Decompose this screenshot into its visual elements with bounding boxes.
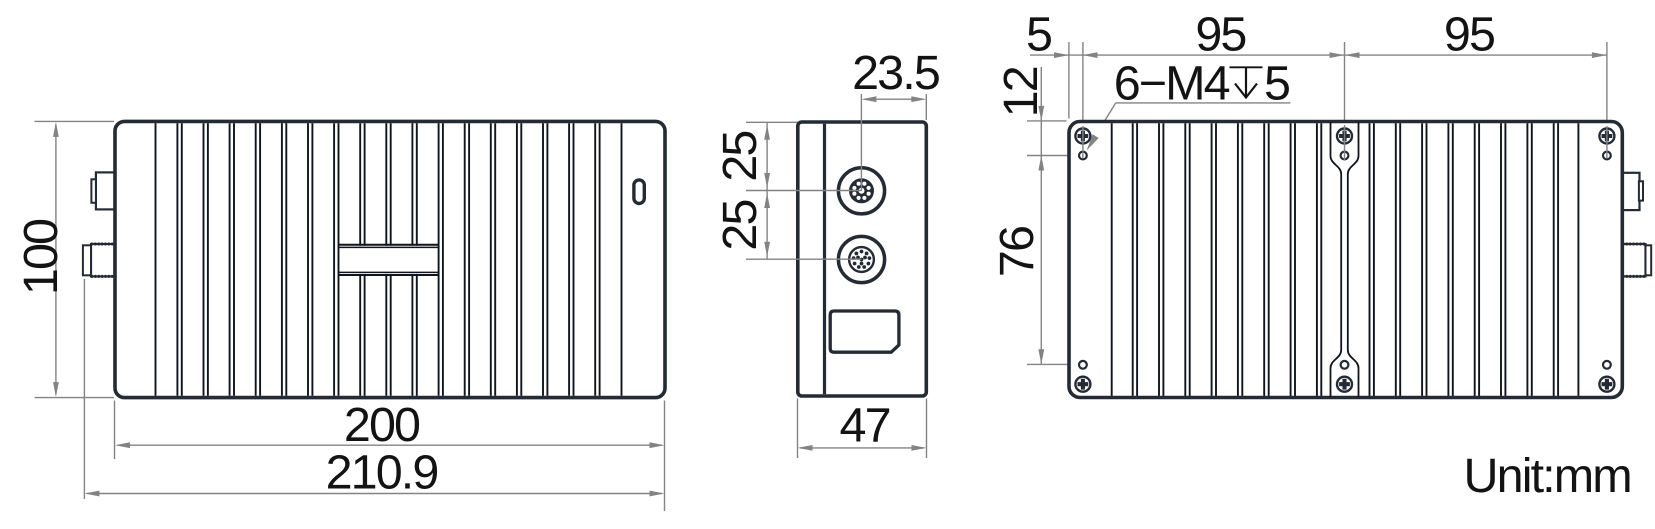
- svg-text:Unit:mm: Unit:mm: [1464, 449, 1631, 503]
- svg-text:200: 200: [344, 398, 420, 452]
- svg-text:5: 5: [1264, 57, 1289, 111]
- svg-text:25: 25: [713, 200, 767, 250]
- svg-text:5: 5: [1026, 7, 1051, 61]
- svg-text:25: 25: [713, 132, 767, 182]
- svg-text:76: 76: [990, 227, 1044, 277]
- svg-text:23.5: 23.5: [852, 46, 939, 100]
- svg-text:12: 12: [994, 67, 1048, 117]
- svg-text:210.9: 210.9: [326, 445, 438, 499]
- svg-text:95: 95: [1195, 8, 1245, 62]
- svg-text:47: 47: [840, 399, 890, 453]
- svg-text:6−M4: 6−M4: [1114, 57, 1230, 111]
- svg-text:95: 95: [1444, 8, 1494, 62]
- svg-text:100: 100: [14, 219, 68, 295]
